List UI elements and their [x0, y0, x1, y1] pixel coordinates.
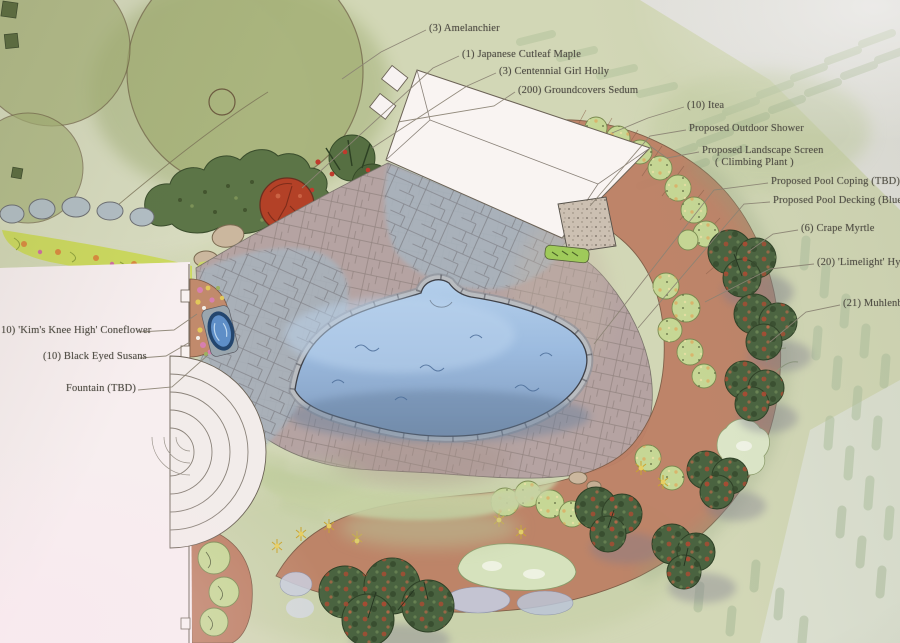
- label-groundcovers-sedum: (200) Groundcovers Sedum: [518, 85, 638, 97]
- label-centennial-girl-holly: (3) Centennial Girl Holly: [499, 66, 609, 78]
- lavender-patch: [446, 587, 510, 613]
- label-japanese-cutleaf-maple: (1) Japanese Cutleaf Maple: [462, 49, 581, 61]
- label-amelanchier: (3) Amelanchier: [429, 23, 500, 35]
- label-pool-coping: Proposed Pool Coping (TBD): [771, 176, 900, 188]
- label-kims-knee-high-coneflower: 10) 'Kim's Knee High' Coneflower: [1, 325, 151, 337]
- label-black-eyed-susans: (10) Black Eyed Susans: [43, 351, 147, 363]
- label-outdoor-shower: Proposed Outdoor Shower: [689, 123, 804, 135]
- label-itea: (10) Itea: [687, 100, 724, 112]
- label-landscape-screen-line2: ( Climbing Plant ): [715, 157, 824, 169]
- label-landscape-screen: Proposed Landscape Screen( Climbing Plan…: [702, 145, 824, 168]
- landscape-plan-photo: (3) Amelanchier (1) Japanese Cutleaf Map…: [0, 0, 900, 643]
- label-muhlenbergia: (21) Muhlenb: [843, 298, 900, 310]
- label-pool-decking: Proposed Pool Decking (Bluesto: [773, 195, 900, 207]
- plan-artwork: [0, 0, 900, 643]
- label-landscape-screen-line1: Proposed Landscape Screen: [702, 145, 824, 156]
- label-crape-myrtle: (6) Crape Myrtle: [801, 223, 875, 235]
- label-fountain: Fountain (TBD): [66, 383, 136, 395]
- label-limelight-hydrangea: (20) 'Limelight' Hyd: [817, 257, 900, 269]
